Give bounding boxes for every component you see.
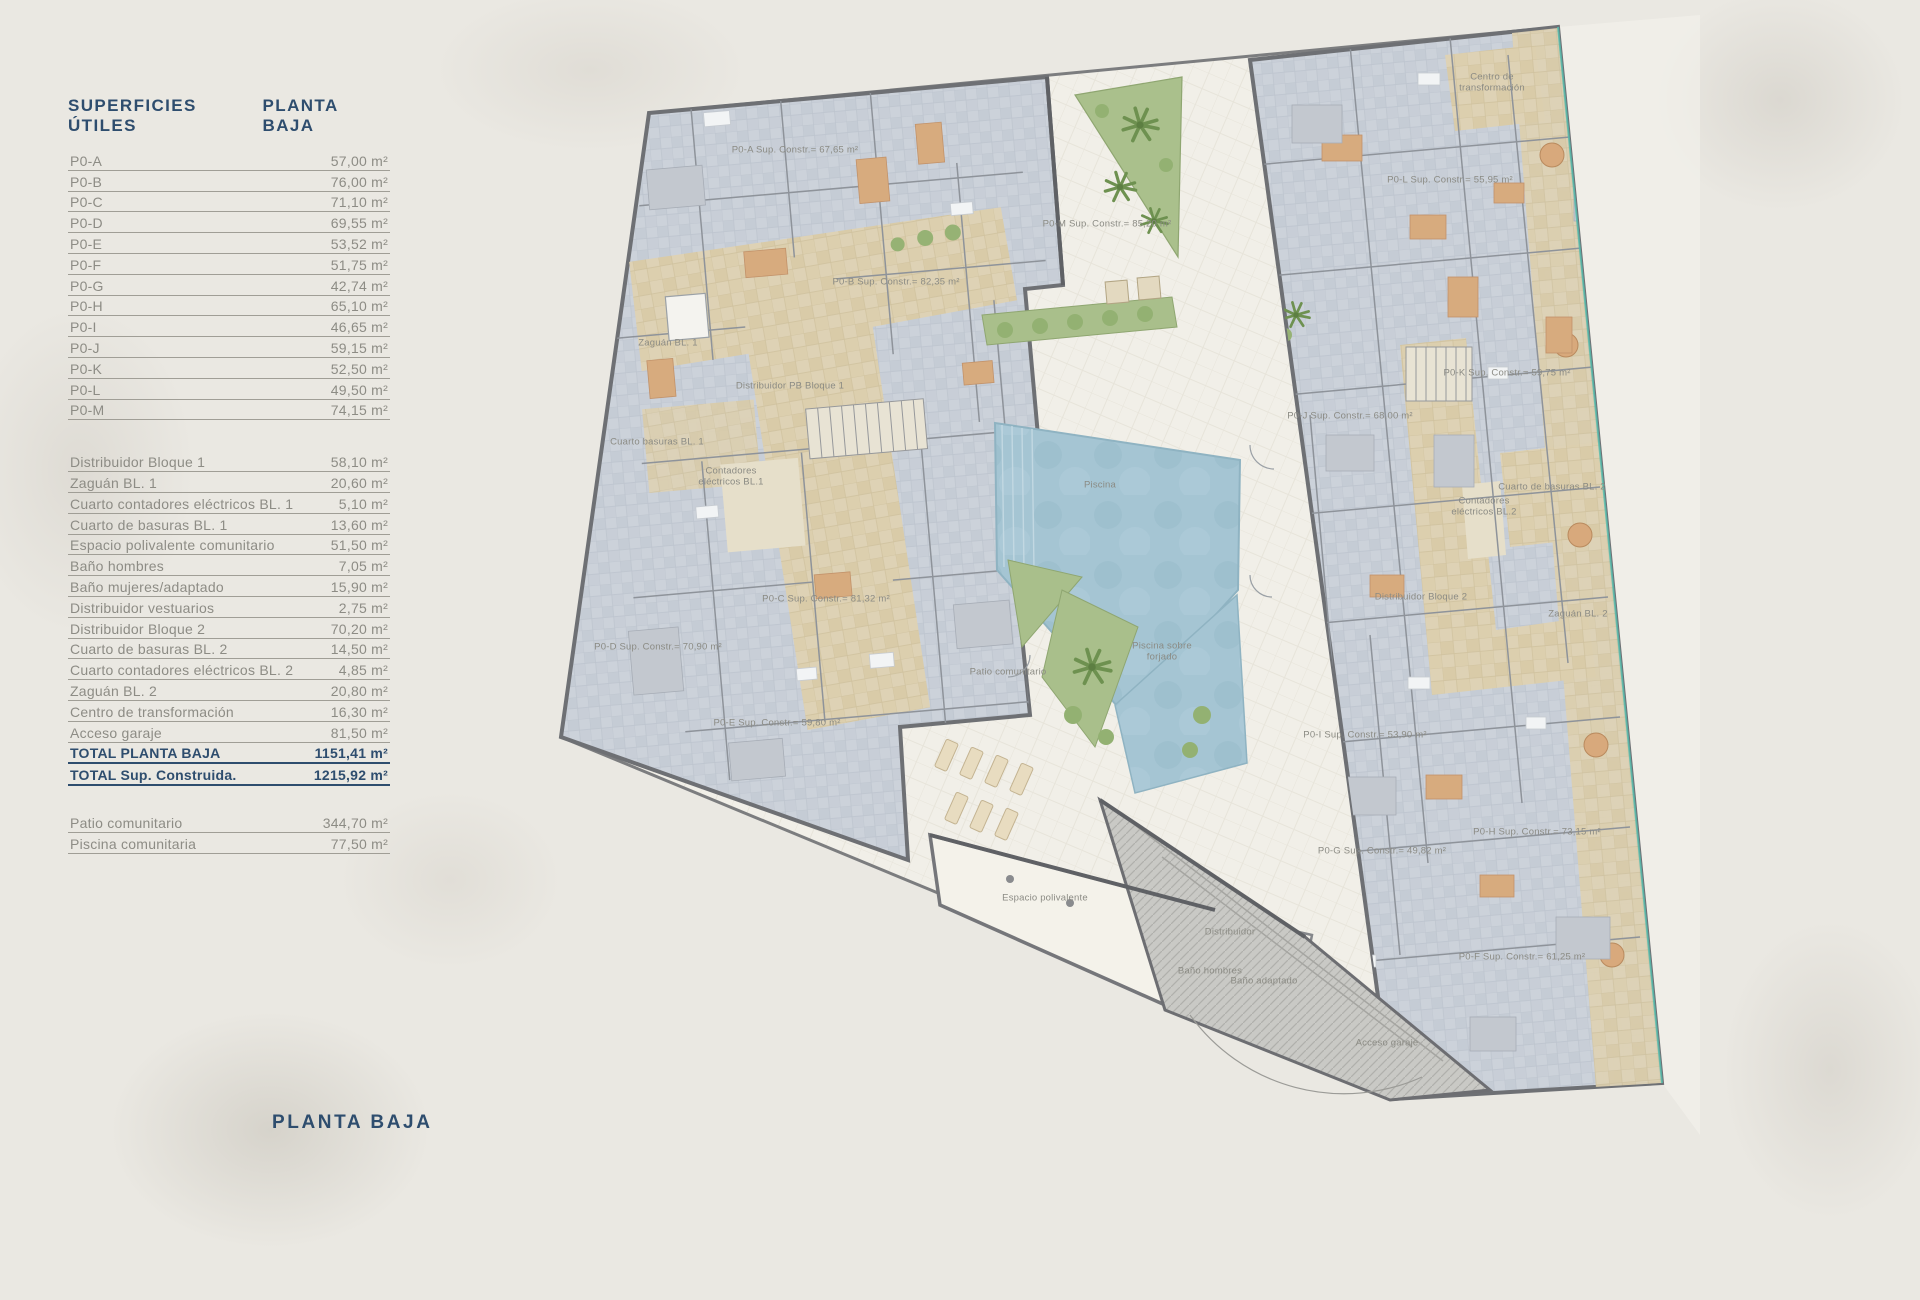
row-value: 52,50 m² bbox=[331, 361, 388, 377]
row-value: 71,10 m² bbox=[331, 194, 388, 210]
row-label: Zaguán BL. 1 bbox=[70, 475, 157, 491]
plan-room-label: P0-B Sup. Constr.= 82,35 m² bbox=[832, 276, 959, 287]
plan-room-label: Cuarto basuras BL. 1 bbox=[610, 436, 704, 447]
floor-plan: P0-A Sup. Constr.= 67,65 m²P0-B Sup. Con… bbox=[550, 15, 1700, 1135]
row-label: Zaguán BL. 2 bbox=[70, 683, 157, 699]
row-label: TOTAL PLANTA BAJA bbox=[70, 745, 220, 761]
row-value: 13,60 m² bbox=[331, 517, 388, 533]
table-row: P0-K 52,50 m² bbox=[68, 358, 390, 379]
plan-room-label: P0-I Sup. Constr.= 53,90 m² bbox=[1303, 729, 1426, 740]
row-label: Cuarto contadores eléctricos BL. 1 bbox=[70, 496, 293, 512]
total-row: TOTAL Sup. Construida. 1215,92 m² bbox=[68, 764, 390, 786]
watercolor-blob bbox=[1680, 860, 1920, 1280]
plan-room-label: Baño adaptado bbox=[1230, 975, 1297, 986]
row-label: P0-J bbox=[70, 340, 100, 356]
plan-room-label: Distribuidor Bloque 2 bbox=[1375, 591, 1467, 602]
outdoor-rows: Patio comunitario 344,70 m² Piscina comu… bbox=[68, 813, 390, 855]
row-value: 57,00 m² bbox=[331, 153, 388, 169]
plan-room-label: P0-M Sup. Constr.= 85,20 m² bbox=[1043, 218, 1172, 229]
row-value: 42,74 m² bbox=[331, 278, 388, 294]
plan-room-label: P0-E Sup. Constr.= 59,80 m² bbox=[713, 717, 840, 728]
row-value: 51,50 m² bbox=[331, 537, 388, 553]
table-row: P0-G 42,74 m² bbox=[68, 275, 390, 296]
row-label: TOTAL Sup. Construida. bbox=[70, 767, 237, 783]
table-row: Cuarto de basuras BL. 1 13,60 m² bbox=[68, 514, 390, 535]
row-label: P0-G bbox=[70, 278, 104, 294]
table-row: Baño mujeres/adaptado 15,90 m² bbox=[68, 576, 390, 597]
plan-room-label: Espacio polivalente bbox=[1002, 892, 1088, 903]
surfaces-table: SUPERFICIES ÚTILES PLANTA BAJA P0-A 57,0… bbox=[68, 96, 390, 854]
row-value: 59,15 m² bbox=[331, 340, 388, 356]
plan-room-label: Piscina sobre forjado bbox=[1123, 641, 1201, 664]
row-value: 344,70 m² bbox=[323, 815, 388, 831]
row-label: P0-L bbox=[70, 382, 101, 398]
row-label: Distribuidor Bloque 1 bbox=[70, 454, 205, 470]
plan-room-label: Distribuidor bbox=[1205, 926, 1255, 937]
row-value: 1215,92 m² bbox=[314, 767, 388, 783]
table-title: SUPERFICIES ÚTILES bbox=[68, 96, 263, 136]
common-area-rows: Distribuidor Bloque 1 58,10 m² Zaguán BL… bbox=[68, 451, 390, 742]
table-row: Centro de transformación 16,30 m² bbox=[68, 701, 390, 722]
plan-room-label: Contadores eléctricos BL.1 bbox=[698, 466, 764, 489]
table-row: P0-I 46,65 m² bbox=[68, 316, 390, 337]
row-value: 1151,41 m² bbox=[315, 745, 388, 761]
row-value: 46,65 m² bbox=[331, 319, 388, 335]
table-row: Piscina comunitaria 77,50 m² bbox=[68, 833, 390, 854]
table-row: Distribuidor Bloque 1 58,10 m² bbox=[68, 451, 390, 472]
row-label: Acceso garaje bbox=[70, 725, 162, 741]
table-row: Espacio polivalente comunitario 51,50 m² bbox=[68, 535, 390, 556]
plan-room-label: P0-H Sup. Constr.= 73,15 m² bbox=[1473, 826, 1601, 837]
table-row: Distribuidor vestuarios 2,75 m² bbox=[68, 597, 390, 618]
table-row: Zaguán BL. 1 20,60 m² bbox=[68, 472, 390, 493]
apartment-rows: P0-A 57,00 m² P0-B 76,00 m² P0-C 71,10 m… bbox=[68, 150, 390, 420]
row-value: 2,75 m² bbox=[339, 600, 388, 616]
plan-room-label: Acceso garaje bbox=[1356, 1037, 1419, 1048]
table-row: P0-E 53,52 m² bbox=[68, 233, 390, 254]
plan-labels: P0-A Sup. Constr.= 67,65 m²P0-B Sup. Con… bbox=[550, 15, 1700, 1135]
plan-room-label: P0-C Sup. Constr.= 81,32 m² bbox=[762, 593, 890, 604]
plan-room-label: Zaguán BL. 1 bbox=[638, 337, 697, 348]
row-value: 65,10 m² bbox=[331, 298, 388, 314]
total-row: TOTAL PLANTA BAJA 1151,41 m² bbox=[68, 743, 390, 765]
row-value: 14,50 m² bbox=[331, 641, 388, 657]
plan-room-label: Patio comunitario bbox=[970, 666, 1047, 677]
row-value: 53,52 m² bbox=[331, 236, 388, 252]
row-label: Piscina comunitaria bbox=[70, 836, 196, 852]
table-row: Patio comunitario 344,70 m² bbox=[68, 813, 390, 834]
plan-room-label: P0-D Sup. Constr.= 70,90 m² bbox=[594, 641, 722, 652]
row-value: 16,30 m² bbox=[331, 704, 388, 720]
plan-room-label: Distribuidor PB Bloque 1 bbox=[736, 380, 844, 391]
table-row: Distribuidor Bloque 2 70,20 m² bbox=[68, 618, 390, 639]
table-row: P0-C 71,10 m² bbox=[68, 192, 390, 213]
row-value: 15,90 m² bbox=[331, 579, 388, 595]
row-label: P0-I bbox=[70, 319, 97, 335]
row-label: Cuarto de basuras BL. 2 bbox=[70, 641, 228, 657]
plan-room-label: P0-G Sup. Constr.= 49,82 m² bbox=[1318, 845, 1446, 856]
row-label: P0-F bbox=[70, 257, 101, 273]
plan-room-label: Cuarto de basuras BL. 2 bbox=[1498, 481, 1606, 492]
row-value: 76,00 m² bbox=[331, 174, 388, 190]
row-value: 51,75 m² bbox=[331, 257, 388, 273]
plan-room-label: Centro de transformación bbox=[1446, 72, 1538, 95]
table-row: P0-H 65,10 m² bbox=[68, 296, 390, 317]
row-label: Cuarto de basuras BL. 1 bbox=[70, 517, 228, 533]
table-floor-label: PLANTA BAJA bbox=[263, 96, 390, 136]
plan-room-label: Contadores eléctricos BL.2 bbox=[1449, 496, 1519, 519]
plan-room-label: P0-K Sup. Constr.= 59,75 m² bbox=[1443, 367, 1570, 378]
row-value: 49,50 m² bbox=[331, 382, 388, 398]
row-value: 7,05 m² bbox=[339, 558, 388, 574]
table-row: P0-D 69,55 m² bbox=[68, 212, 390, 233]
row-label: Espacio polivalente comunitario bbox=[70, 537, 275, 553]
table-row: Cuarto contadores eléctricos BL. 1 5,10 … bbox=[68, 493, 390, 514]
row-value: 70,20 m² bbox=[331, 621, 388, 637]
row-value: 77,50 m² bbox=[331, 836, 388, 852]
plan-room-label: P0-F Sup. Constr.= 61,25 m² bbox=[1459, 951, 1586, 962]
row-label: P0-B bbox=[70, 174, 102, 190]
row-value: 4,85 m² bbox=[339, 662, 388, 678]
table-row: Acceso garaje 81,50 m² bbox=[68, 722, 390, 743]
table-header: SUPERFICIES ÚTILES PLANTA BAJA bbox=[68, 96, 390, 136]
row-value: 69,55 m² bbox=[331, 215, 388, 231]
row-label: P0-C bbox=[70, 194, 103, 210]
plan-room-label: Zaguán BL. 2 bbox=[1548, 608, 1607, 619]
plan-sheet: { "page": { "bottom_title": "PLANTA BAJA… bbox=[0, 0, 1920, 1280]
total-rows: TOTAL PLANTA BAJA 1151,41 m² TOTAL Sup. … bbox=[68, 743, 390, 786]
row-label: P0-D bbox=[70, 215, 103, 231]
row-label: Baño hombres bbox=[70, 558, 164, 574]
row-value: 5,10 m² bbox=[339, 496, 388, 512]
plan-title: PLANTA BAJA bbox=[272, 1112, 433, 1134]
row-value: 74,15 m² bbox=[331, 402, 388, 418]
table-row: P0-L 49,50 m² bbox=[68, 379, 390, 400]
row-label: P0-H bbox=[70, 298, 103, 314]
table-row: P0-A 57,00 m² bbox=[68, 150, 390, 171]
row-label: Baño mujeres/adaptado bbox=[70, 579, 224, 595]
table-row: P0-F 51,75 m² bbox=[68, 254, 390, 275]
plan-room-label: P0-J Sup. Constr.= 68,00 m² bbox=[1287, 410, 1413, 421]
table-row: P0-B 76,00 m² bbox=[68, 171, 390, 192]
table-row: Cuarto de basuras BL. 2 14,50 m² bbox=[68, 639, 390, 660]
row-label: P0-M bbox=[70, 402, 104, 418]
row-label: Patio comunitario bbox=[70, 815, 182, 831]
table-row: Zaguán BL. 2 20,80 m² bbox=[68, 680, 390, 701]
table-row: P0-J 59,15 m² bbox=[68, 337, 390, 358]
table-row: P0-M 74,15 m² bbox=[68, 400, 390, 421]
row-label: Cuarto contadores eléctricos BL. 2 bbox=[70, 662, 293, 678]
table-row: Cuarto contadores eléctricos BL. 2 4,85 … bbox=[68, 659, 390, 680]
row-value: 81,50 m² bbox=[331, 725, 388, 741]
row-label: Centro de transformación bbox=[70, 704, 234, 720]
row-value: 58,10 m² bbox=[331, 454, 388, 470]
row-label: P0-E bbox=[70, 236, 102, 252]
row-label: Distribuidor Bloque 2 bbox=[70, 621, 205, 637]
row-label: Distribuidor vestuarios bbox=[70, 600, 214, 616]
row-label: P0-K bbox=[70, 361, 102, 377]
plan-room-label: Piscina bbox=[1084, 479, 1116, 490]
row-value: 20,60 m² bbox=[331, 475, 388, 491]
table-row: Baño hombres 7,05 m² bbox=[68, 555, 390, 576]
row-value: 20,80 m² bbox=[331, 683, 388, 699]
plan-room-label: P0-A Sup. Constr.= 67,65 m² bbox=[732, 144, 859, 155]
row-label: P0-A bbox=[70, 153, 102, 169]
plan-room-label: P0-L Sup. Constr.= 55,95 m² bbox=[1387, 174, 1513, 185]
